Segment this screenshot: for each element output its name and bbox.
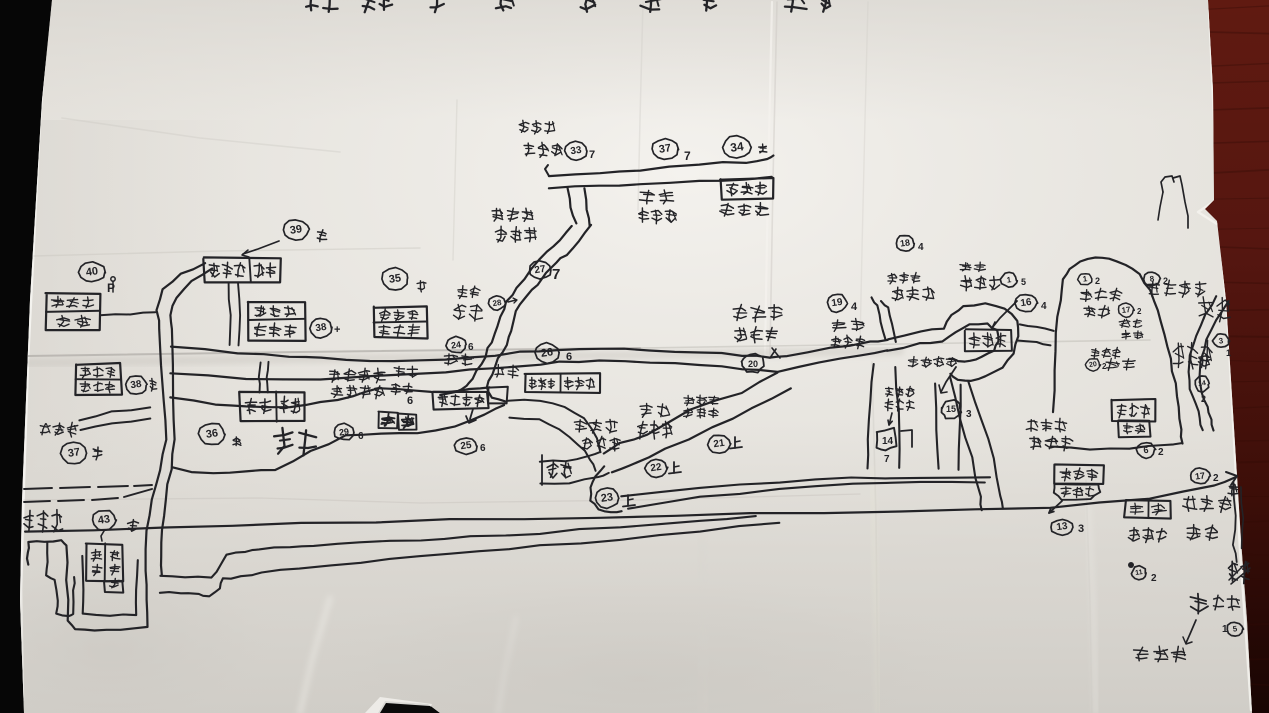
svg-text:15: 15: [946, 404, 956, 414]
svg-text:6: 6: [407, 395, 413, 407]
svg-text:2: 2: [1201, 394, 1206, 404]
svg-text:7: 7: [552, 266, 560, 283]
svg-text:40: 40: [85, 265, 99, 279]
svg-text:6: 6: [358, 431, 364, 442]
svg-text:17: 17: [1121, 305, 1132, 315]
svg-text:17: 17: [1194, 470, 1205, 481]
svg-text:2: 2: [1151, 573, 1157, 584]
svg-text:7: 7: [884, 454, 890, 465]
svg-text:16: 16: [1020, 297, 1033, 310]
svg-text:38: 38: [315, 322, 328, 335]
svg-text:4: 4: [918, 242, 924, 253]
svg-text:22: 22: [650, 462, 663, 475]
svg-text:29: 29: [338, 426, 349, 437]
svg-text:3: 3: [1078, 523, 1084, 535]
svg-text:7: 7: [684, 149, 691, 163]
svg-text:28: 28: [492, 298, 503, 308]
svg-text:1: 1: [1226, 348, 1231, 358]
svg-text:23: 23: [600, 491, 614, 505]
svg-text:43: 43: [97, 513, 111, 527]
svg-text:13: 13: [1056, 521, 1069, 534]
svg-text:4: 4: [851, 301, 858, 313]
svg-text:25: 25: [460, 440, 473, 453]
svg-text:33: 33: [570, 145, 583, 158]
svg-text:3: 3: [966, 409, 972, 420]
svg-text:20: 20: [1089, 361, 1098, 369]
svg-text:27: 27: [534, 264, 547, 277]
svg-text:P: P: [107, 281, 115, 295]
svg-text:2: 2: [1213, 473, 1219, 484]
svg-text:6: 6: [468, 342, 474, 353]
svg-text:37: 37: [658, 142, 672, 156]
svg-text:18: 18: [899, 237, 910, 248]
svg-text:34: 34: [729, 139, 744, 155]
svg-text:6: 6: [480, 443, 486, 454]
svg-text:21: 21: [713, 438, 726, 451]
svg-text:26: 26: [540, 346, 554, 360]
svg-text:14: 14: [1198, 380, 1207, 388]
svg-text:24: 24: [450, 339, 461, 350]
svg-text:5: 5: [1021, 277, 1026, 287]
svg-text:4: 4: [1041, 301, 1047, 312]
svg-text:19: 19: [831, 297, 844, 310]
svg-text:38: 38: [130, 379, 143, 392]
svg-text:20: 20: [748, 359, 758, 369]
svg-text:+: +: [334, 324, 340, 336]
svg-text:37: 37: [67, 446, 81, 460]
svg-text:2: 2: [1137, 307, 1142, 316]
svg-text:2: 2: [1158, 447, 1164, 458]
svg-text:7: 7: [589, 149, 595, 161]
svg-text:11: 11: [1135, 569, 1143, 577]
svg-text:2: 2: [1102, 362, 1107, 371]
svg-text:6: 6: [566, 351, 572, 363]
svg-text:36: 36: [205, 427, 219, 441]
svg-text:35: 35: [388, 272, 402, 286]
svg-text:2: 2: [1095, 276, 1100, 286]
svg-text:14: 14: [882, 436, 894, 447]
svg-text:39: 39: [289, 223, 303, 237]
